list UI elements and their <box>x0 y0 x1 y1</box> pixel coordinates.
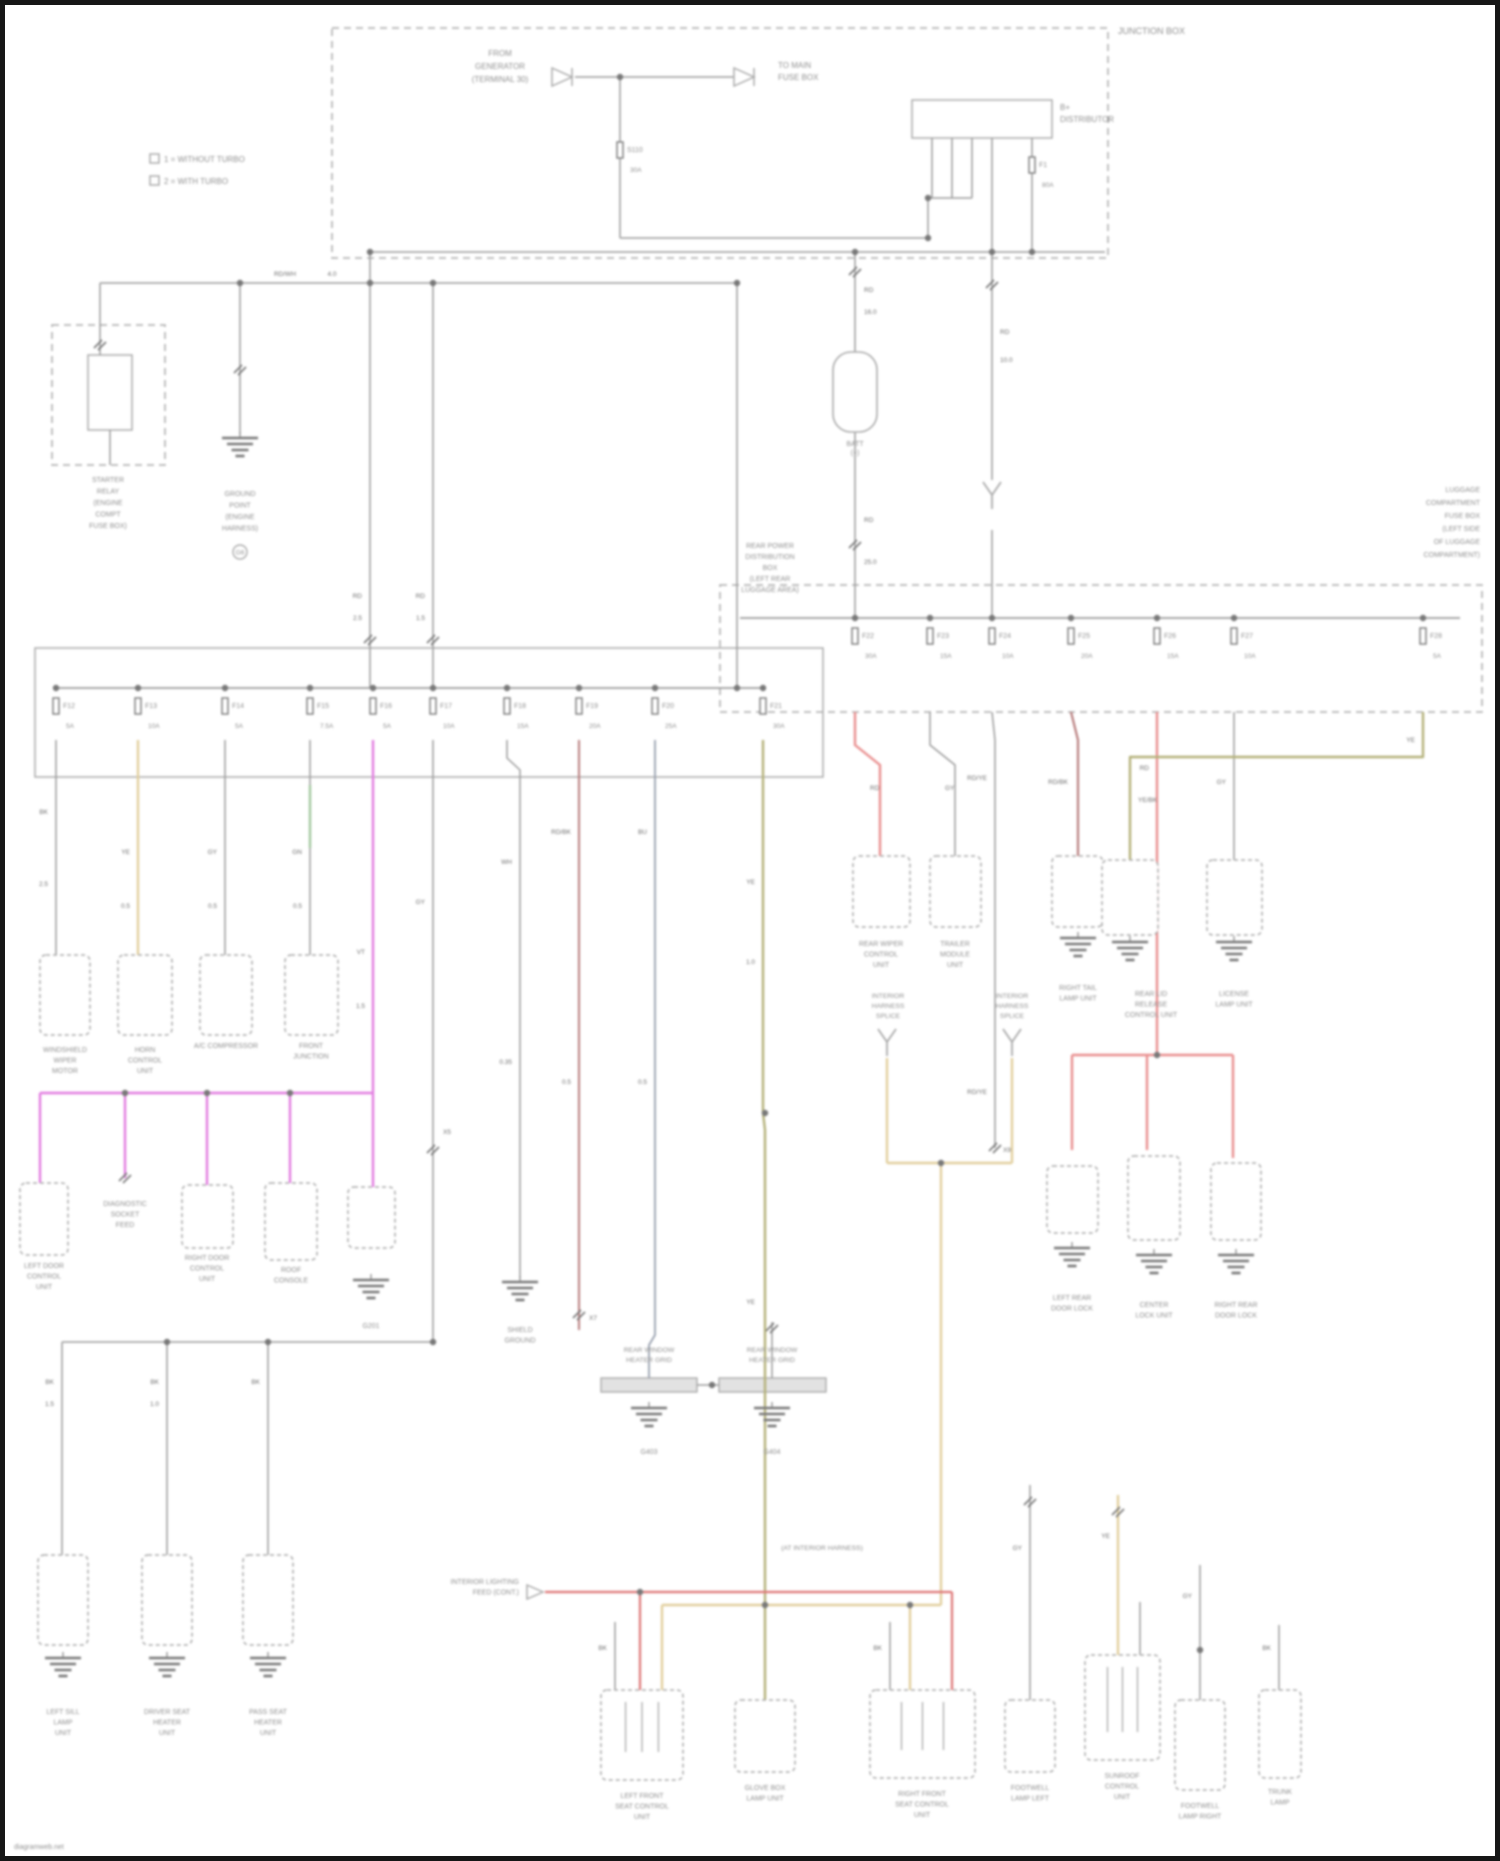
text-line: 2 = WITH TURBO <box>164 177 228 186</box>
junction-dot <box>927 615 933 621</box>
text-line: RELAY <box>97 489 120 496</box>
text-line: UNIT <box>55 1730 72 1737</box>
text-label: DRIVER SEATHEATERUNIT <box>144 1709 191 1737</box>
text-line: RD <box>870 785 880 792</box>
text-label: FROMGENERATOR(TERMINAL 30) <box>472 49 529 84</box>
module-sill-lamp <box>38 1555 88 1645</box>
text-line: REAR WINDOW <box>747 1347 798 1354</box>
junction-dot <box>135 685 141 691</box>
text-label: SUNROOFCONTROLUNIT <box>1105 1773 1140 1801</box>
junction-dot <box>1154 615 1160 621</box>
text-line: 1 = WITHOUT TURBO <box>164 155 245 164</box>
module-left-door <box>20 1183 68 1255</box>
text-line: CONTROL <box>190 1266 224 1273</box>
text-line: RD <box>353 593 363 600</box>
text-label: 2.5 <box>353 615 362 622</box>
junction-dot <box>989 615 995 621</box>
text-line: FOOTWELL <box>1011 1785 1050 1792</box>
text-label: X9 <box>1003 1147 1011 1154</box>
text-label: CENTERLOCK UNIT <box>1135 1302 1173 1320</box>
text-label: A/C COMPRESSOR <box>194 1043 258 1050</box>
fuse-name: F12 <box>63 703 75 710</box>
text-label: WH <box>501 859 512 866</box>
text-label: YE <box>1406 737 1415 744</box>
text-line: DISTRIBUTION <box>745 554 794 561</box>
junction-dot <box>122 1090 128 1096</box>
text-line: HARNESS <box>872 1003 905 1010</box>
fuse-icon <box>135 698 141 714</box>
text-line: UNIT <box>36 1284 53 1291</box>
text-label: X7 <box>589 1315 597 1322</box>
text-line: INTERIOR <box>872 993 905 1000</box>
text-line: JUNCTION <box>293 1054 328 1061</box>
text-line: YE <box>746 1299 755 1306</box>
text-line: 4.0 <box>327 271 336 278</box>
text-line: DISTRIBUTOR <box>1060 115 1114 124</box>
fuse-icon <box>430 698 436 714</box>
text-line: LEFT SILL <box>46 1709 79 1716</box>
text-line: ROOF <box>281 1267 301 1274</box>
fuse-name: F25 <box>1078 633 1090 640</box>
text-label: 2 = WITH TURBO <box>164 177 228 186</box>
splice-right <box>1003 1029 1021 1056</box>
wire <box>649 740 655 1378</box>
text-label: RD/BK <box>1048 779 1069 786</box>
text-label: G201 <box>362 1323 379 1330</box>
text-line: HEATER <box>153 1720 181 1727</box>
text-line: 16.0 <box>864 309 877 316</box>
text-line: RD <box>1000 329 1010 336</box>
heater-bar-left <box>601 1378 697 1392</box>
text-line: B+ <box>1060 103 1070 112</box>
text-line: X9 <box>1003 1147 1011 1154</box>
text-label: BK <box>39 809 48 816</box>
text-label: INTERIOR LIGHTINGFEED (CONT.) <box>451 1579 519 1597</box>
text-line: UNIT <box>260 1730 277 1737</box>
fuse-name: F24 <box>999 633 1011 640</box>
text-line: BOX <box>763 565 778 572</box>
text-line: (TERMINAL 30) <box>472 75 529 84</box>
text-line: X7 <box>589 1315 597 1322</box>
fuse-f1 <box>1029 157 1035 173</box>
junction-dot <box>53 685 59 691</box>
text-label: ROOFCONSOLE <box>274 1267 309 1285</box>
junction-dot <box>237 280 243 286</box>
text-line: REAR POWER <box>746 543 794 550</box>
text-line: JUNCTION BOX <box>1118 26 1185 36</box>
b-plus-distributor-box <box>912 100 1052 138</box>
text-label: TRAILERMODULEUNIT <box>940 941 970 969</box>
text-label: FOOTWELLLAMP LEFT <box>1011 1785 1050 1803</box>
text-line: (+) <box>851 450 860 457</box>
text-label: RD/BK <box>551 829 572 836</box>
text-label: 1.5 <box>356 1003 365 1010</box>
text-label: RIGHT TAILLAMP UNIT <box>1059 985 1097 1003</box>
text-line: CONTROL <box>27 1274 61 1281</box>
battery-component <box>833 352 877 432</box>
text-label: BK <box>45 1379 54 1386</box>
fuse-amp: 20A <box>589 723 601 730</box>
junction-dot <box>709 1382 715 1388</box>
junction-dot <box>430 280 436 286</box>
fuse-amp: 10A <box>1002 653 1014 660</box>
junction-dot <box>430 685 436 691</box>
text-line: COMPT <box>95 512 121 519</box>
text-line: HEATER <box>254 1720 282 1727</box>
junction-dot <box>430 1339 436 1345</box>
text-line: INTERIOR <box>996 993 1029 1000</box>
fuse-icon <box>1068 628 1074 644</box>
module-seat-heater-l <box>142 1555 192 1645</box>
text-line: GY <box>945 785 955 792</box>
text-line: G404 <box>763 1449 780 1456</box>
text-label: WINDSHIELDWIPERMOTOR <box>43 1047 87 1075</box>
junction-dot <box>367 280 373 286</box>
text-line: MODULE <box>940 952 970 959</box>
fuse-icon <box>370 698 376 714</box>
wire <box>930 712 955 856</box>
module-lock-center <box>1128 1156 1180 1240</box>
junction-dot <box>852 615 858 621</box>
junction-dot <box>734 280 740 286</box>
junction-box-title: JUNCTION BOX <box>1118 26 1185 36</box>
text-line: LEFT REAR <box>1053 1295 1091 1302</box>
text-line: DOOR LOCK <box>1051 1306 1093 1313</box>
text-line: FOOTWELL <box>1181 1803 1220 1810</box>
module-trunk-lamp <box>1259 1690 1301 1778</box>
module-roof-console <box>265 1183 317 1260</box>
text-label: BK <box>251 1379 260 1386</box>
ref-circle-label: G6 <box>236 550 245 557</box>
text-label: GY <box>1013 1545 1023 1552</box>
fuse-amp: 25A <box>665 723 677 730</box>
module-glovebox-lamp <box>735 1700 795 1772</box>
fuse-amp: 7.5A <box>320 723 334 730</box>
text-label: REAR LIDRELEASECONTROL UNIT <box>1125 991 1178 1019</box>
text-line: BK <box>45 1379 54 1386</box>
junction-dot <box>370 685 376 691</box>
module-rear-lid <box>1102 860 1158 935</box>
text-line: RD/WH <box>274 271 296 278</box>
fuse-amp: 5A <box>235 723 244 730</box>
text-line: MOTOR <box>52 1068 78 1075</box>
splice-main-feed <box>983 482 1001 509</box>
junction-dot <box>265 1339 271 1345</box>
module-glovebox <box>348 1187 395 1248</box>
text-line: 0.5 <box>562 1079 571 1086</box>
text-line: DOOR LOCK <box>1215 1313 1257 1320</box>
junction-dot <box>222 685 228 691</box>
module-seat-heater-r <box>243 1555 293 1645</box>
text-label: 1.5 <box>45 1401 54 1408</box>
junction-dot <box>1197 1647 1203 1653</box>
text-line: RELEASE <box>1135 1002 1168 1009</box>
text-label: PASS SEATHEATERUNIT <box>249 1709 288 1737</box>
text-line: GROUND <box>224 491 255 498</box>
watermark: diagramweb.net <box>14 1844 64 1851</box>
junction-dot <box>576 685 582 691</box>
text-line: SOCKET <box>111 1212 141 1219</box>
text-label: RD <box>416 593 426 600</box>
junction-dot <box>852 249 858 255</box>
fuse-amp: 10A <box>1244 653 1256 660</box>
text-line: STARTER <box>92 477 124 484</box>
text-line: UNIT <box>914 1812 931 1819</box>
text-line: CONTROL UNIT <box>1125 1012 1178 1019</box>
text-line: HARNESS) <box>222 526 258 533</box>
text-line: (ENGINE <box>225 514 255 521</box>
fuse-name: F14 <box>232 703 244 710</box>
text-label: INTERIORHARNESSSPLICE <box>872 993 905 1020</box>
text-line: diagramweb.net <box>14 1844 64 1851</box>
text-line: BK <box>251 1379 260 1386</box>
fuse-icon <box>760 698 766 714</box>
text-label: 1 = WITHOUT TURBO <box>164 155 245 164</box>
text-line: CONTROL <box>128 1058 162 1065</box>
fuse-name: F16 <box>380 703 392 710</box>
text-label: (AT INTERIOR HARNESS) <box>781 1545 863 1552</box>
text-label: VT <box>357 949 365 956</box>
text-line: CONSOLE <box>274 1278 309 1285</box>
text-line: GENERATOR <box>475 62 525 71</box>
text-label: BK <box>150 1379 159 1386</box>
fuse-icon <box>989 628 995 644</box>
text-line: INTERIOR LIGHTING <box>451 1579 519 1586</box>
text-line: VT <box>357 949 365 956</box>
junction-dot <box>925 235 931 241</box>
fuse-name: F15 <box>317 703 329 710</box>
text-line: SPLICE <box>876 1013 901 1020</box>
text-line: GY <box>1013 1545 1023 1552</box>
legend-square-2 <box>150 176 159 185</box>
text-line: GROUND <box>504 1338 535 1345</box>
text-label: RIGHT REARDOOR LOCK <box>1214 1302 1257 1320</box>
module-right-tail <box>1052 856 1103 927</box>
starter-relay-inner <box>88 355 132 430</box>
text-line: YE <box>1101 1533 1110 1540</box>
text-label: G404 <box>763 1449 780 1456</box>
wire <box>763 740 765 1700</box>
power-distribution-diagram: G6S11030AF180AF125AF1310AF145AF157.5AF16… <box>0 0 1500 1861</box>
text-label: 16.0 <box>864 309 877 316</box>
junction-dot <box>287 1090 293 1096</box>
text-line: LAMP RIGHT <box>1179 1814 1222 1821</box>
text-line: (LEFT REAR <box>750 576 791 583</box>
text-line: FEED (CONT.) <box>473 1590 519 1597</box>
text-line: (AT INTERIOR HARNESS) <box>781 1545 863 1552</box>
text-label: GY <box>208 849 218 856</box>
text-line: POINT <box>229 503 251 510</box>
text-label: GY <box>1183 1593 1193 1600</box>
fuse-amp: 15A <box>517 723 529 730</box>
text-line: YE/BK <box>1138 797 1158 804</box>
text-label: GN <box>292 849 302 856</box>
text-line: BK <box>39 809 48 816</box>
junction-dot <box>652 685 658 691</box>
text-line: BK <box>598 1645 607 1652</box>
text-line: YE <box>121 849 130 856</box>
text-line: TRUNK <box>1268 1789 1292 1796</box>
text-label: X5 <box>443 1129 451 1136</box>
fuse-amp: 10A <box>148 723 160 730</box>
text-line: BU <box>638 829 647 836</box>
text-label: GY <box>416 899 426 906</box>
text-line: (ENGINE <box>93 500 123 507</box>
text-line: SPLICE <box>1000 1013 1025 1020</box>
text-line: UNIT <box>634 1814 651 1821</box>
fuse-icon <box>1420 628 1426 644</box>
text-line: 1.5 <box>356 1003 365 1010</box>
text-label: BK <box>1262 1645 1271 1652</box>
fuse-name: F1 <box>1039 162 1047 169</box>
fuse-icon <box>1231 628 1237 644</box>
text-line: YE <box>746 879 755 886</box>
text-label: GLOVE BOXLAMP UNIT <box>745 1785 786 1803</box>
fuse-name: F20 <box>662 703 674 710</box>
text-label: 0.5 <box>638 1079 647 1086</box>
junction-dot <box>367 249 373 255</box>
fuse-amp: 30A <box>630 167 642 174</box>
module-footwell-r <box>1175 1700 1225 1790</box>
junction-dot <box>1029 249 1035 255</box>
fuse-amp: 10A <box>443 723 455 730</box>
fuse-name: F17 <box>440 703 452 710</box>
text-line: X5 <box>443 1129 451 1136</box>
module-license-lamp <box>1207 860 1262 935</box>
text-line: DRIVER SEAT <box>144 1709 191 1716</box>
text-line: 1.5 <box>416 615 425 622</box>
text-line: LICENSE <box>1219 991 1249 998</box>
text-line: UNIT <box>873 962 890 969</box>
fuse-icon <box>504 698 510 714</box>
text-line: (LEFT SIDE <box>1442 526 1480 533</box>
text-line: 1.0 <box>150 1401 159 1408</box>
text-line: HORN <box>135 1047 156 1054</box>
wire <box>855 712 880 856</box>
text-label: LEFT REARDOOR LOCK <box>1051 1295 1093 1313</box>
junction-dot <box>734 685 740 691</box>
text-label: BK <box>598 1645 607 1652</box>
text-line: RIGHT TAIL <box>1059 985 1097 992</box>
text-line: LEFT DOOR <box>24 1263 64 1270</box>
text-line: WIPER <box>54 1058 77 1065</box>
module-front-junction <box>285 955 338 1035</box>
text-label: GY <box>945 785 955 792</box>
text-line: SEAT CONTROL <box>895 1802 949 1809</box>
text-line: LOCK UNIT <box>1135 1313 1173 1320</box>
text-label: LEFT DOORCONTROLUNIT <box>24 1263 64 1291</box>
text-label: YE/BK <box>1138 797 1158 804</box>
text-line: LAMP <box>53 1720 72 1727</box>
text-line: UNIT <box>199 1276 216 1283</box>
fuse-amp: 5A <box>1433 653 1442 660</box>
text-line: A/C COMPRESSOR <box>194 1043 258 1050</box>
wiring-diagram-page: G6S11030AF180AF125AF1310AF145AF157.5AF16… <box>0 0 1500 1861</box>
text-label: GROUNDPOINT(ENGINEHARNESS) <box>222 491 258 533</box>
module-lock-right <box>1211 1163 1261 1240</box>
text-line: WINDSHIELD <box>43 1047 87 1054</box>
text-label: B+DISTRIBUTOR <box>1060 103 1114 124</box>
junction-dot <box>762 1602 768 1608</box>
fuse-name: F26 <box>1164 633 1176 640</box>
text-line: WH <box>501 859 512 866</box>
fuse-name: F27 <box>1241 633 1253 640</box>
text-line: FUSE BOX <box>778 73 819 82</box>
heater-bar-right <box>719 1378 826 1392</box>
text-line: RIGHT FRONT <box>898 1791 946 1798</box>
text-line: RD/YE <box>967 775 988 782</box>
fuse-s110 <box>617 142 623 158</box>
text-label: 0.5 <box>121 903 130 910</box>
module-footwell-l <box>1005 1700 1055 1772</box>
fuse-name: F19 <box>586 703 598 710</box>
text-line: RD/YE <box>967 1089 988 1096</box>
text-line: PASS SEAT <box>249 1709 288 1716</box>
module-right-door <box>182 1185 233 1248</box>
text-line: REAR WIPER <box>859 941 903 948</box>
text-line: GY <box>1183 1593 1193 1600</box>
text-line: 25.0 <box>864 559 877 566</box>
text-label: LEFT SILLLAMPUNIT <box>46 1709 79 1737</box>
text-label: FOOTWELLLAMP RIGHT <box>1179 1803 1222 1821</box>
text-line: COMPARTMENT) <box>1423 552 1480 559</box>
junction-dot <box>938 1160 944 1166</box>
text-label: G403 <box>640 1449 657 1456</box>
text-line: RD/BK <box>1048 779 1069 786</box>
fuse-name: F13 <box>145 703 157 710</box>
wire <box>1130 712 1423 860</box>
module-wiper <box>40 955 90 1035</box>
text-line: SEAT CONTROL <box>615 1804 669 1811</box>
text-line: YE <box>1406 737 1415 744</box>
text-label: 1.0 <box>150 1401 159 1408</box>
text-label: RD/WH <box>274 271 296 278</box>
fuse-name: F23 <box>937 633 949 640</box>
text-line: CONTROL <box>864 952 898 959</box>
text-label: 2.5 <box>39 881 48 888</box>
text-line: FEED <box>116 1222 135 1229</box>
fuse-icon <box>1154 628 1160 644</box>
junction-dot <box>164 1339 170 1345</box>
text-line: SUNROOF <box>1105 1773 1140 1780</box>
text-line: GY <box>416 899 426 906</box>
module-rear-wiper <box>853 856 910 927</box>
text-line: REAR WINDOW <box>624 1347 675 1354</box>
text-line: 2.5 <box>39 881 48 888</box>
text-label: 0.5 <box>208 903 217 910</box>
text-label: RD <box>1000 329 1010 336</box>
text-line: BK <box>1262 1645 1271 1652</box>
text-line: LAMP UNIT <box>1215 1002 1253 1009</box>
text-line: CENTER <box>1140 1302 1169 1309</box>
text-line: GN <box>292 849 302 856</box>
text-line: UNIT <box>159 1730 176 1737</box>
text-label: RD/YE <box>967 775 988 782</box>
text-label: DIAGNOSTICSOCKETFEED <box>103 1201 147 1229</box>
text-label: FRONTJUNCTION <box>293 1043 328 1061</box>
text-line: RD <box>864 517 874 524</box>
text-label: TO MAINFUSE BOX <box>778 61 819 82</box>
text-label: RD <box>864 287 874 294</box>
module-trailer <box>930 856 981 927</box>
junction-dot <box>907 1602 913 1608</box>
text-label: 1.5 <box>416 615 425 622</box>
text-line: RD <box>416 593 426 600</box>
fuse-name: F28 <box>1430 633 1442 640</box>
text-label: TRUNKLAMP <box>1268 1789 1292 1807</box>
fuse-amp: 80A <box>1042 182 1054 189</box>
fuse-amp: 5A <box>66 723 75 730</box>
